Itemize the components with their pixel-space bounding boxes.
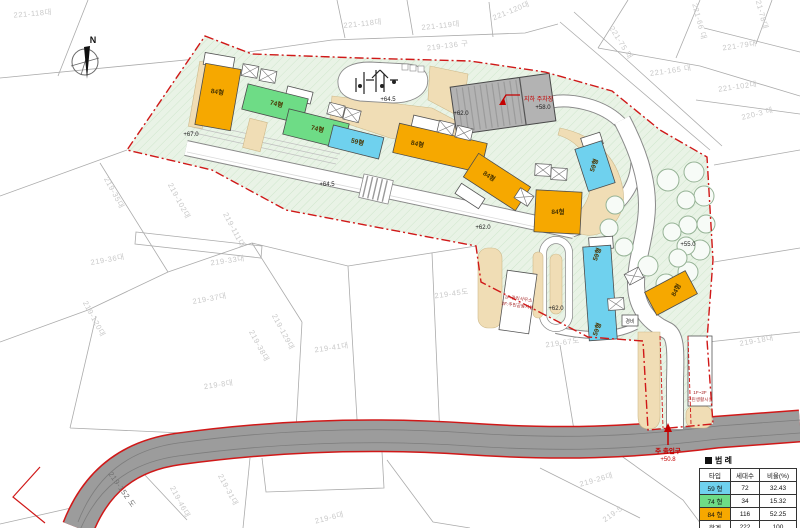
legend: 범 례 타입세대수비율(%) 59 형7232.4374 형3415.3284 …	[699, 455, 797, 528]
legend-ratio-cell: 100	[760, 521, 797, 528]
legend-ratio-cell: 52.25	[760, 508, 797, 521]
legend-row: 84 형11652.25	[700, 508, 797, 521]
legend-units-cell: 222	[731, 521, 760, 528]
core-x-icon	[608, 297, 625, 310]
core-x-icon	[535, 164, 552, 177]
elevation-label: +55.0	[680, 242, 696, 248]
legend-type-cell: 84 형	[700, 508, 731, 521]
parcel-label: 221-79대	[722, 39, 757, 53]
tree-icon	[669, 249, 687, 267]
parcel-label: 221-118대	[13, 7, 52, 19]
tree-icon	[663, 223, 681, 241]
main-entrance-level: +50.8	[660, 457, 676, 463]
parcel-label: 219-36대	[90, 252, 126, 267]
parcel-label: 219-136 구	[426, 38, 469, 52]
parcel-label: 221-75 대	[607, 25, 634, 61]
parcel-label: 219-18대	[739, 333, 775, 348]
building-type-label: 84형	[551, 207, 564, 216]
elevation-label: +58.0	[535, 105, 551, 111]
legend-type-cell: 합계	[700, 521, 731, 528]
tree-icon	[615, 238, 633, 256]
parcel-label: 219-26대	[579, 471, 615, 489]
parcel-label: 221-66 대	[690, 2, 708, 40]
parcel-label: 221-78대	[753, 0, 771, 30]
parcel-label: 221-119대	[421, 19, 460, 32]
core-x-icon	[551, 168, 568, 181]
tree-icon	[606, 196, 624, 214]
legend-row: 59 형7232.43	[700, 482, 797, 495]
parcel-label: 221-165 대	[649, 63, 692, 78]
legend-title: 범 례	[705, 455, 797, 466]
elevation-label: +62.0	[475, 225, 491, 231]
legend-table: 타입세대수비율(%) 59 형7232.4374 형3415.3284 형116…	[699, 468, 797, 528]
legend-column-header: 타입	[700, 469, 731, 482]
parcel-label: 219-120대	[81, 299, 107, 338]
parcel-label: 219-35대	[102, 175, 126, 210]
compass-n-label: N	[90, 35, 97, 45]
guard-post: 경비	[622, 315, 638, 326]
parcel-label: 219-41대	[314, 341, 349, 355]
legend-units-cell: 72	[731, 482, 760, 495]
elevation-label: +62.0	[453, 111, 469, 117]
parcel-label: 219-102대	[166, 181, 192, 220]
compass: N	[71, 35, 99, 79]
tree-icon	[694, 186, 714, 206]
core-x-icon	[241, 64, 259, 79]
core-x-icon	[259, 69, 277, 84]
legend-type-cell: 74 형	[700, 495, 731, 508]
legend-column-header: 비율(%)	[760, 469, 797, 482]
neighborhood-label-1: 1F~2F	[693, 390, 707, 395]
tree-icon	[677, 191, 695, 209]
tree-icon	[684, 162, 704, 182]
legend-bullet-icon	[705, 457, 712, 464]
parcel-label: 219-8대	[203, 378, 234, 391]
parcel-label: 219-37대	[192, 291, 228, 306]
legend-row: 74 형3415.32	[700, 495, 797, 508]
guard-label: 경비	[625, 318, 634, 325]
elevation-label: +64.5	[380, 97, 396, 103]
legend-column-header: 세대수	[731, 469, 760, 482]
tree-icon	[600, 219, 618, 237]
underground-parking-label: 지하 주차장	[524, 95, 554, 103]
parcel-label: 219-5	[601, 504, 624, 524]
tree-icon	[657, 169, 679, 191]
legend-ratio-cell: 32.43	[760, 482, 797, 495]
elevation-label: +64.5	[319, 182, 335, 188]
legend-units-cell: 34	[731, 495, 760, 508]
legend-units-cell: 116	[731, 508, 760, 521]
elevation-label: +67.0	[183, 132, 199, 138]
parcel-label: 219-31대	[216, 472, 240, 507]
parcel-label: 221-102대	[718, 79, 758, 93]
parcel-label: 219-45도	[434, 287, 469, 301]
main-entrance-label: 주 출입구	[655, 446, 681, 455]
parcel-label: 219-129대	[270, 312, 296, 351]
parcel-label: 219-6대	[314, 510, 345, 526]
legend-row: 합계222100	[700, 521, 797, 528]
parcel-label: 221-118대	[343, 17, 382, 30]
legend-type-cell: 59 형	[700, 482, 731, 495]
neighborhood-label-2: 근린생활시설	[687, 396, 712, 403]
tree-icon	[697, 215, 715, 233]
legend-ratio-cell: 15.32	[760, 495, 797, 508]
tree-icon	[679, 216, 697, 234]
parcel-label: 220-3 대	[741, 105, 775, 122]
site-plan-page: 1F:관리사무소 2F:주민공동시설 1F~2F 근린생활시설 경비 지하 주차…	[0, 0, 800, 528]
parcel-label: 219-38대	[247, 328, 271, 363]
site-plan-svg: 1F:관리사무소 2F:주민공동시설 1F~2F 근린생활시설 경비 지하 주차…	[0, 0, 800, 528]
elevation-label: +62.0	[548, 306, 564, 312]
parcel-label: 219-67도	[545, 336, 580, 350]
parcel-label: 221-120대	[491, 0, 531, 22]
parcel-label: 219-46대	[168, 484, 192, 519]
